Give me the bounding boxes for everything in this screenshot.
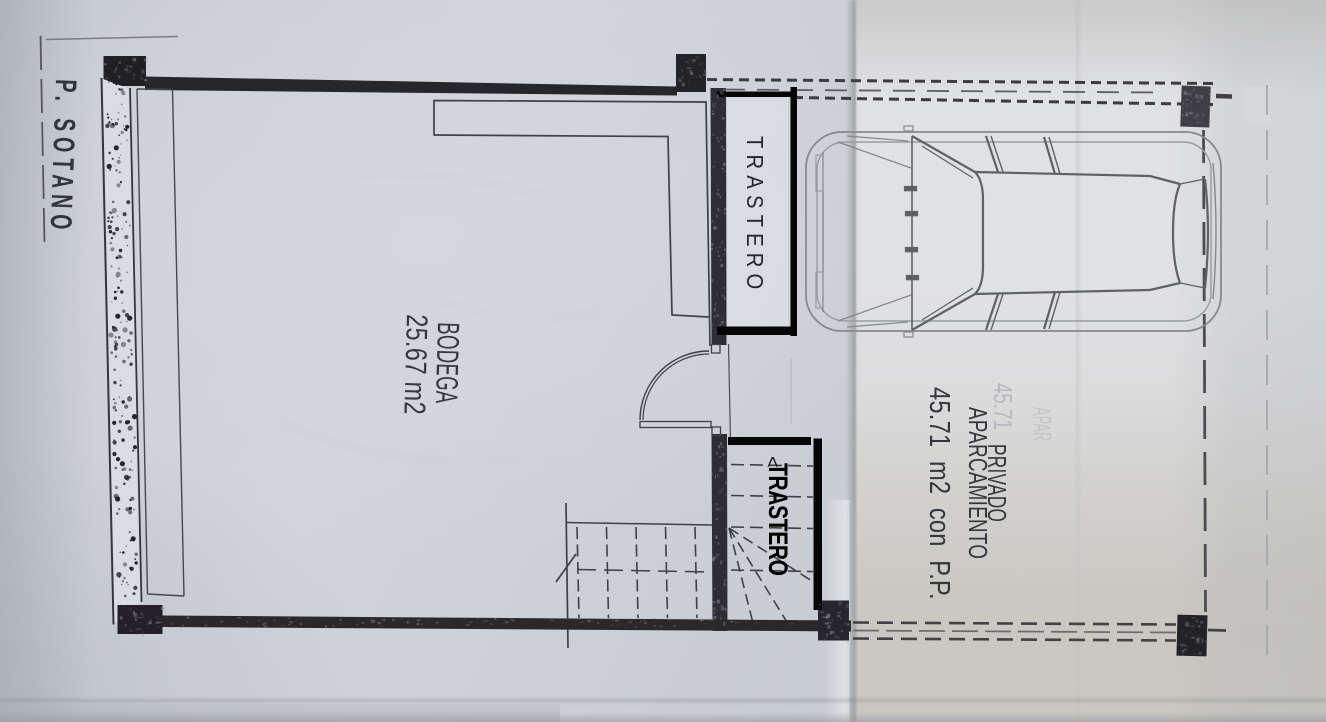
svg-text:25.67 m2: 25.67 m2 bbox=[398, 314, 434, 415]
svg-text:TRASTERO: TRASTERO bbox=[742, 136, 769, 295]
svg-text:P. SOTANO: P. SOTANO bbox=[43, 79, 82, 236]
svg-text:PRIVADO: PRIVADO bbox=[982, 444, 1012, 522]
svg-text:45.71 m2 con P.P.: 45.71 m2 con P.P. bbox=[923, 387, 956, 600]
svg-text:45.71: 45.71 bbox=[988, 383, 1018, 430]
svg-text:TRASTERO: TRASTERO bbox=[762, 463, 792, 576]
svg-text:APAR: APAR bbox=[1027, 407, 1056, 441]
